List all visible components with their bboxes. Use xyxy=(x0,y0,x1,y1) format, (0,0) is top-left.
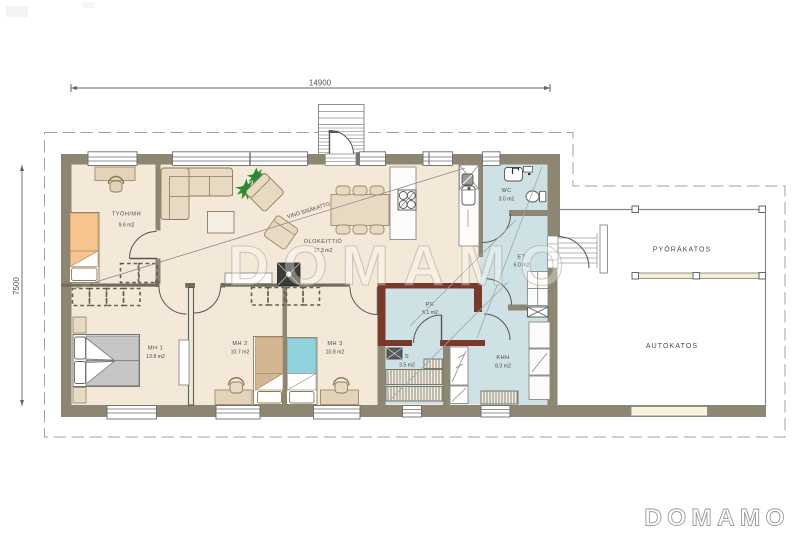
svg-text:DOMAMO: DOMAMO xyxy=(644,505,790,532)
svg-text:WC: WC xyxy=(501,188,511,194)
svg-text:3.0 m2: 3.0 m2 xyxy=(499,197,515,203)
svg-text:9.6 m2: 9.6 m2 xyxy=(119,223,135,229)
svg-text:MH 3: MH 3 xyxy=(327,341,342,347)
svg-text:MH 1: MH 1 xyxy=(148,346,163,352)
svg-text:8.3 m2: 8.3 m2 xyxy=(495,364,511,370)
svg-text:14900: 14900 xyxy=(309,79,332,88)
svg-text:3.5 m2: 3.5 m2 xyxy=(399,363,415,369)
svg-text:10.8 m2: 10.8 m2 xyxy=(326,350,345,356)
svg-text:DOMAMO: DOMAMO xyxy=(228,234,578,298)
svg-text:13.8 m2: 13.8 m2 xyxy=(146,354,165,360)
svg-text:AUTOKATOS: AUTOKATOS xyxy=(646,343,698,350)
svg-text:5.1 m2: 5.1 m2 xyxy=(422,310,438,316)
svg-text:MH 2: MH 2 xyxy=(232,341,247,347)
svg-text:S: S xyxy=(405,354,409,360)
svg-text:KHH: KHH xyxy=(496,355,509,361)
svg-text:10.7 m2: 10.7 m2 xyxy=(231,350,250,356)
svg-text:7500: 7500 xyxy=(12,277,21,295)
svg-text:PYÖRÄKATOS: PYÖRÄKATOS xyxy=(653,246,712,254)
svg-text:TYÖH/MH: TYÖH/MH xyxy=(112,211,141,218)
